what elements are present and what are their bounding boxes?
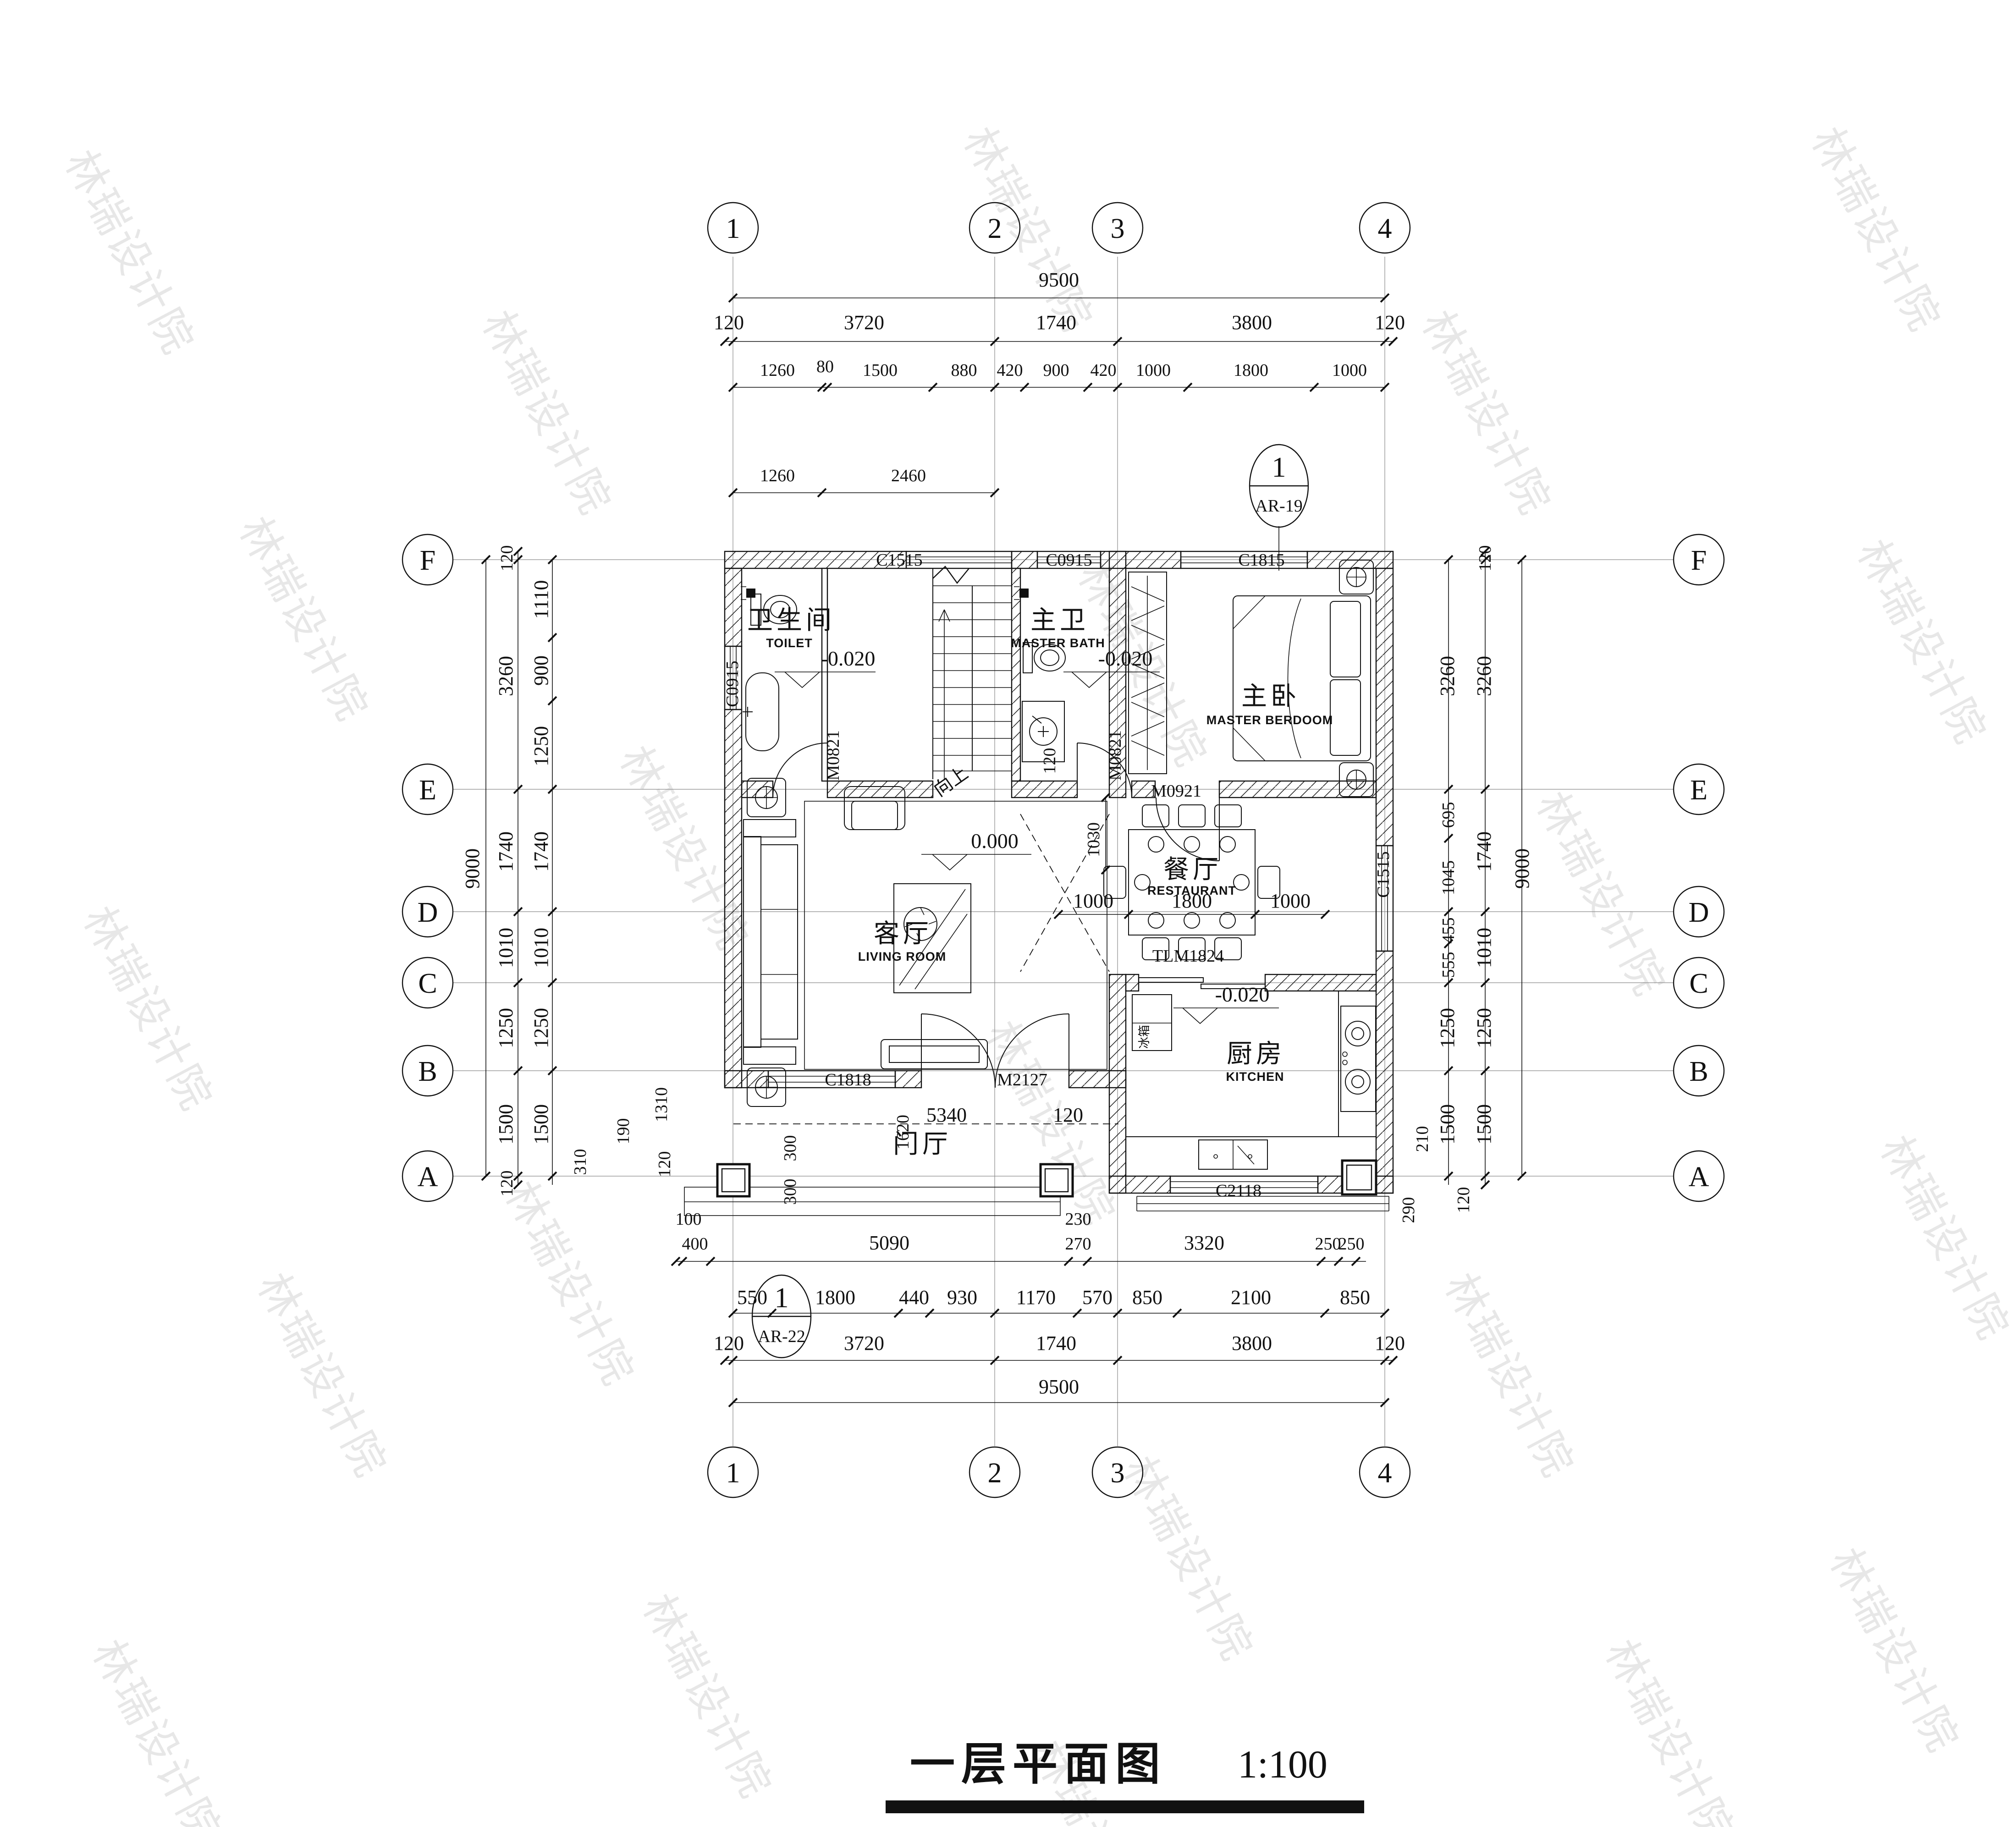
dim-text: 1500 bbox=[495, 1104, 517, 1145]
watermark-text: 林瑞设计院 bbox=[1436, 1266, 1582, 1486]
dim-text: 3320 bbox=[1184, 1232, 1224, 1254]
dim-text: 3800 bbox=[1232, 1332, 1272, 1354]
door-tag: M0921 bbox=[1151, 781, 1201, 801]
dim-text: 3260 bbox=[495, 656, 517, 696]
svg-text:-0.020: -0.020 bbox=[821, 647, 876, 670]
grid-bubble-label: 1 bbox=[726, 1458, 740, 1489]
window-tag: C2118 bbox=[1216, 1181, 1261, 1200]
watermark-text: 林瑞设计院 bbox=[1871, 1128, 2016, 1349]
level-kitchen: -0.020 bbox=[1173, 983, 1279, 1024]
dim-text: 1740 bbox=[530, 831, 552, 872]
watermark-text: 林瑞设计院 bbox=[83, 1633, 230, 1827]
level-hall: 0.000 bbox=[921, 829, 1031, 870]
dim-text: 120 bbox=[1375, 1332, 1405, 1354]
grid-bubble-label: B bbox=[418, 1056, 437, 1087]
drawing-scale: 1:100 bbox=[1238, 1742, 1327, 1786]
door-tag: M0821 bbox=[824, 730, 843, 781]
grid-bubble-label: 4 bbox=[1378, 1458, 1392, 1489]
room-label-cn: 客厅 bbox=[874, 920, 932, 948]
grid-bubble-label: C bbox=[418, 968, 437, 999]
watermark-text: 林瑞设计院 bbox=[1802, 120, 1949, 341]
grid-bubble-label: 4 bbox=[1378, 213, 1392, 244]
column bbox=[1041, 1164, 1073, 1196]
dim-text: 1000 bbox=[1332, 361, 1367, 380]
dim-text: 1740 bbox=[1473, 831, 1495, 872]
watermark-text: 林瑞设计院 bbox=[496, 1174, 643, 1395]
window-tag: C1515 bbox=[1374, 851, 1393, 897]
detail-bubble-ar22: 1 AR-22 bbox=[752, 1275, 811, 1358]
room-label-en: MASTER BERDOOM bbox=[1206, 713, 1333, 727]
watermark-text: 林瑞设计院 bbox=[230, 510, 377, 730]
dim-text: 900 bbox=[1043, 361, 1069, 380]
dim-text: 80 bbox=[816, 357, 834, 376]
svg-text:1: 1 bbox=[1272, 452, 1286, 483]
dim-text: 1030 bbox=[1084, 822, 1103, 857]
grid-bubble-label: A bbox=[1689, 1161, 1709, 1193]
grid-bubble-label: E bbox=[419, 775, 436, 806]
dim-text: 1250 bbox=[530, 1008, 552, 1048]
dim-text: 5090 bbox=[869, 1232, 909, 1254]
grid-bubble-label: C bbox=[1689, 968, 1708, 999]
dim-text: 1010 bbox=[1473, 928, 1495, 968]
dim-text: 1500 bbox=[863, 361, 898, 380]
dim-text: 1740 bbox=[495, 831, 517, 872]
dim-text: 120 bbox=[1476, 545, 1495, 572]
door-tag: M0821 bbox=[1106, 730, 1125, 781]
dim-text: 1250 bbox=[495, 1008, 517, 1048]
dim-text: 1170 bbox=[1016, 1286, 1056, 1309]
dim-text: 1250 bbox=[530, 726, 552, 766]
grid-bubble-label: B bbox=[1689, 1056, 1708, 1087]
watermark-text: 林瑞设计院 bbox=[1115, 1449, 1261, 1670]
grid-bubble-label: F bbox=[1691, 545, 1707, 576]
title-underline bbox=[886, 1800, 1364, 1813]
dim-text: 300 bbox=[781, 1179, 800, 1205]
dim-text: 420 bbox=[997, 361, 1023, 380]
dim-text: 120 bbox=[1375, 311, 1405, 334]
dim-text: 120 bbox=[1040, 748, 1059, 774]
fridge-label: 冰箱 bbox=[1138, 1025, 1151, 1049]
dim-text: 1800 bbox=[815, 1286, 855, 1309]
dim-text: 1045 bbox=[1439, 860, 1458, 895]
grid-bubble-label: F bbox=[420, 545, 435, 576]
dim-text: 1110 bbox=[530, 580, 552, 619]
window-tag: C1818 bbox=[825, 1070, 871, 1090]
dim-text: 120 bbox=[714, 1332, 744, 1354]
dim-text: 9000 bbox=[461, 848, 484, 889]
window-tag: C0915 bbox=[1046, 550, 1092, 570]
room-label-cn: 厨房 bbox=[1227, 1040, 1285, 1068]
dim-text: 250 bbox=[1338, 1234, 1365, 1254]
room-label-en: KITCHEN bbox=[1226, 1070, 1284, 1084]
grid-bubble-label: 2 bbox=[988, 213, 1002, 244]
dim-text: 850 bbox=[1132, 1286, 1162, 1309]
dim-text: 930 bbox=[947, 1286, 977, 1309]
dim-text: 310 bbox=[571, 1149, 590, 1175]
dim-text: 1740 bbox=[1036, 1332, 1076, 1354]
room-label-en: RESTAURANT bbox=[1147, 884, 1236, 897]
watermark-text: 林瑞设计院 bbox=[1527, 785, 1674, 1005]
dim-text: 1010 bbox=[495, 928, 517, 968]
column bbox=[1342, 1161, 1376, 1194]
watermark-text: 林瑞设计院 bbox=[954, 120, 1101, 341]
dim-text: 120 bbox=[714, 311, 744, 334]
dim-text: 2460 bbox=[891, 466, 926, 485]
dim-text: 1260 bbox=[760, 466, 795, 485]
dim-text: 230 bbox=[1065, 1210, 1091, 1229]
detail-bubbles: 1 AR-19 1 AR-22 bbox=[752, 445, 1308, 1358]
column bbox=[717, 1164, 749, 1196]
dim-text: 2100 bbox=[1231, 1286, 1271, 1309]
watermark-text: 林瑞设计院 bbox=[56, 143, 203, 363]
watermark-text: 林瑞设计院 bbox=[473, 303, 620, 524]
dim-text: 250 bbox=[1315, 1234, 1341, 1254]
svg-text:AR-22: AR-22 bbox=[758, 1327, 805, 1346]
svg-text:-0.020: -0.020 bbox=[1098, 647, 1153, 670]
dim-text: 1500 bbox=[1473, 1104, 1495, 1145]
dim-text: 3260 bbox=[1436, 656, 1459, 696]
detail-bubble-ar19: 1 AR-19 bbox=[1250, 445, 1308, 527]
dim-text: 1500 bbox=[530, 1104, 552, 1145]
watermark-text: 林瑞设计院 bbox=[74, 899, 221, 1120]
svg-text:AR-19: AR-19 bbox=[1255, 496, 1302, 516]
room-label-en: TOILET bbox=[766, 636, 813, 650]
dim-text: 5340 bbox=[926, 1104, 967, 1126]
window-tag: C1515 bbox=[876, 550, 922, 570]
door-tag: TLM1824 bbox=[1152, 947, 1224, 966]
dim-text: 9500 bbox=[1039, 269, 1079, 291]
dim-text: 270 bbox=[1065, 1234, 1091, 1254]
dim-text: 850 bbox=[1340, 1286, 1370, 1309]
level-markers: -0.020 -0.020 0.000 -0.020 bbox=[775, 647, 1279, 1024]
dim-text: 1000 bbox=[1270, 890, 1311, 912]
dim-text: 120 bbox=[1053, 1104, 1083, 1126]
watermark-text: 林瑞设计院 bbox=[1821, 1541, 1967, 1761]
meter-icon bbox=[1019, 589, 1029, 598]
watermark-text: 林瑞设计院 bbox=[1596, 1633, 1743, 1827]
dim-text: 290 bbox=[1399, 1197, 1418, 1223]
dim-text: 120 bbox=[497, 545, 517, 572]
dim-text: 9500 bbox=[1039, 1376, 1079, 1398]
dim-text: 1310 bbox=[652, 1087, 671, 1122]
watermark-text: 林瑞设计院 bbox=[633, 1587, 780, 1807]
dim-text: 1010 bbox=[530, 928, 552, 968]
room-label-cn: 餐厅 bbox=[1163, 856, 1222, 884]
dim-text: 440 bbox=[899, 1286, 929, 1309]
dim-text: 120 bbox=[497, 1171, 517, 1197]
dim-text: 570 bbox=[1082, 1286, 1113, 1309]
dim-text: 1500 bbox=[1436, 1104, 1459, 1145]
svg-text:0.000: 0.000 bbox=[971, 829, 1019, 853]
meter-icon bbox=[746, 589, 755, 598]
dim-text: 3800 bbox=[1232, 311, 1272, 334]
floor-plan-sheet: 林瑞设计院 林瑞设计院 林瑞设计院 林瑞设计院 林瑞设计院 林瑞设计院 林瑞设计… bbox=[0, 0, 2016, 1827]
dim-text: 1000 bbox=[1073, 890, 1113, 912]
room-label-en: MASTER BATH bbox=[1011, 636, 1105, 650]
drawing-title: 一层平面图 bbox=[910, 1740, 1167, 1789]
dim-text: 190 bbox=[614, 1118, 633, 1145]
dim-text: 900 bbox=[530, 655, 552, 686]
dim-text: 695 bbox=[1439, 802, 1458, 828]
svg-text:1: 1 bbox=[775, 1282, 789, 1314]
dim-text: 880 bbox=[951, 361, 977, 380]
door-tag: M2127 bbox=[997, 1070, 1047, 1090]
grid-bubble-label: 3 bbox=[1111, 1458, 1125, 1489]
dim-text: 555 bbox=[1439, 952, 1458, 978]
dim-text: 1800 bbox=[1234, 361, 1268, 380]
dim-text: 1260 bbox=[760, 361, 795, 380]
grid-bubble-label: A bbox=[418, 1161, 438, 1193]
room-label-cn: 卫生间 bbox=[747, 606, 835, 635]
svg-text:-0.020: -0.020 bbox=[1215, 983, 1270, 1006]
dim-text: 1740 bbox=[1036, 311, 1076, 334]
dim-text: 100 bbox=[676, 1210, 702, 1229]
window-tag: C1815 bbox=[1238, 550, 1284, 570]
grid-bubble-label: 3 bbox=[1111, 213, 1125, 244]
dim-text: 3720 bbox=[844, 1332, 884, 1354]
dim-text: 120 bbox=[1454, 1187, 1473, 1213]
dim-text: 3720 bbox=[844, 311, 884, 334]
watermark-text: 林瑞设计院 bbox=[1413, 303, 1559, 524]
room-label-cn: 主卧 bbox=[1241, 682, 1300, 711]
staircase bbox=[933, 567, 1012, 781]
dim-text: 1000 bbox=[1136, 361, 1171, 380]
dim-text: 420 bbox=[1091, 361, 1117, 380]
window-tag: C0915 bbox=[723, 660, 742, 707]
dim-text: 3260 bbox=[1473, 656, 1495, 696]
stair-up-label: 向上 bbox=[930, 763, 972, 801]
grid-bubble-label: 2 bbox=[988, 1458, 1002, 1489]
room-label-en: LIVING ROOM bbox=[858, 950, 947, 963]
watermark-text: 林瑞设计院 bbox=[248, 1266, 395, 1486]
dim-text: 455 bbox=[1439, 918, 1458, 944]
grid-bubble-label: D bbox=[1689, 897, 1709, 928]
dim-text: 400 bbox=[682, 1234, 708, 1254]
dim-text: 120 bbox=[655, 1151, 674, 1178]
room-label-cn: 主卫 bbox=[1030, 606, 1089, 635]
dim-text: 1250 bbox=[1473, 1008, 1495, 1048]
dim-text: 550 bbox=[737, 1286, 767, 1309]
dim-text: 210 bbox=[1413, 1126, 1432, 1152]
grid-bubble-label: E bbox=[1690, 775, 1708, 806]
dim-text: 1250 bbox=[1436, 1008, 1459, 1048]
watermark-text: 林瑞设计院 bbox=[1848, 533, 1995, 753]
dim-text: 9000 bbox=[1511, 848, 1533, 889]
dim-text: 300 bbox=[781, 1135, 800, 1161]
grid-bubble-label: 1 bbox=[726, 213, 740, 244]
title-block: 一层平面图 1:100 bbox=[886, 1740, 1364, 1813]
room-label-cn: 门厅 bbox=[893, 1130, 952, 1159]
grid-bubble-label: D bbox=[418, 897, 438, 928]
